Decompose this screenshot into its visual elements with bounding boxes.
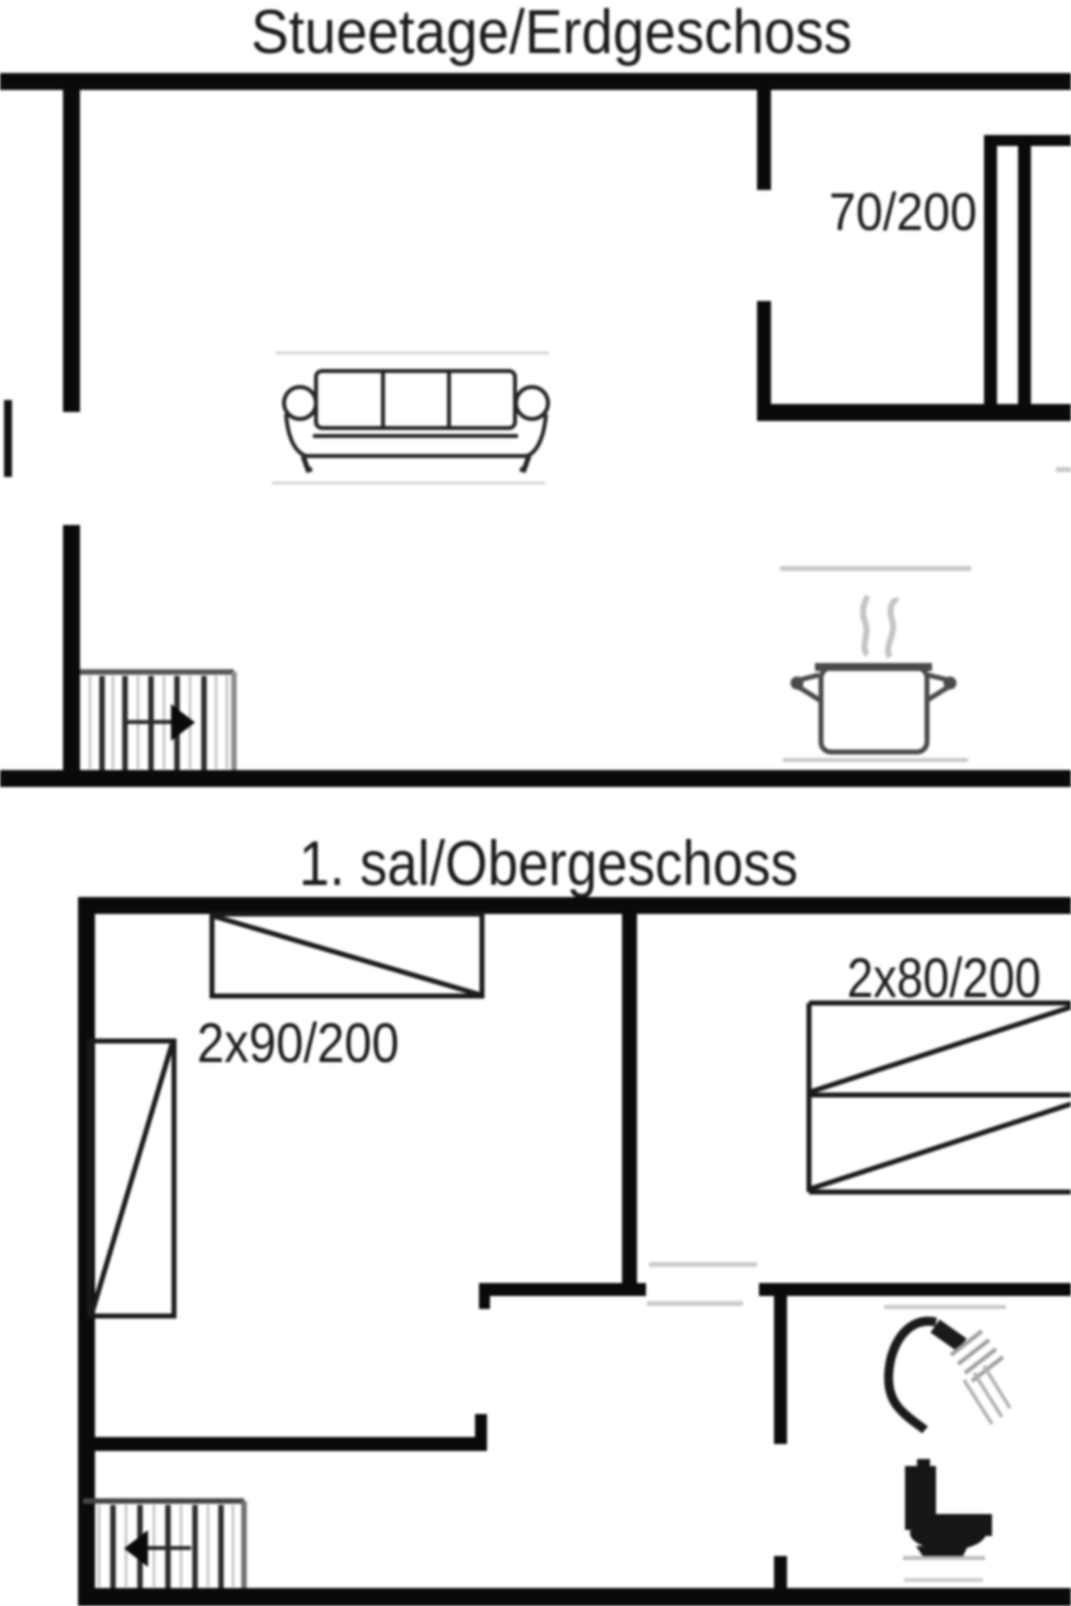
- svg-text:70/200: 70/200: [829, 183, 977, 242]
- svg-text:Stueetage/Erdgeschoss: Stueetage/Erdgeschoss: [251, 0, 852, 67]
- svg-text:1. sal/Obergeschoss: 1. sal/Obergeschoss: [299, 829, 798, 899]
- svg-text:2x80/200: 2x80/200: [847, 946, 1041, 1009]
- svg-text:2x90/200: 2x90/200: [197, 1011, 399, 1074]
